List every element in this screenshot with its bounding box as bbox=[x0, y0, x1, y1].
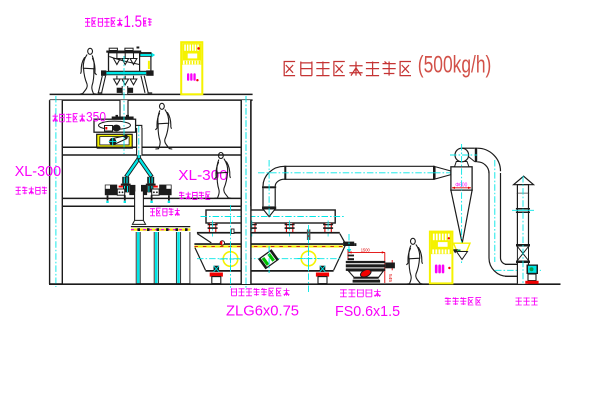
svg-text:XL-300: XL-300 bbox=[178, 167, 228, 184]
svg-text:ZLG6x0.75: ZLG6x0.75 bbox=[226, 303, 299, 320]
svg-text:1.5: 1.5 bbox=[124, 13, 143, 31]
svg-text:(500kg/h): (500kg/h) bbox=[418, 51, 492, 78]
svg-text:350: 350 bbox=[86, 109, 106, 125]
svg-text:1500: 1500 bbox=[361, 248, 370, 253]
svg-text:FS0.6x1.5: FS0.6x1.5 bbox=[335, 303, 400, 320]
svg-text:545: 545 bbox=[387, 274, 393, 282]
svg-text:XL-300: XL-300 bbox=[15, 164, 61, 180]
